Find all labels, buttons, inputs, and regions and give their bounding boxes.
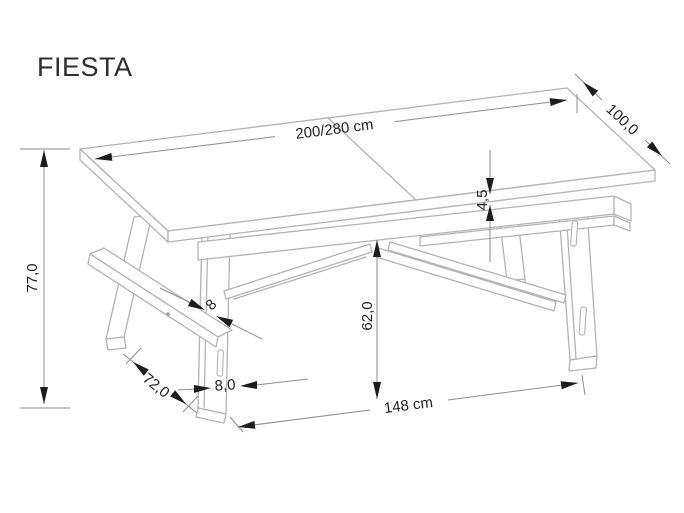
dim-height-label: 77,0 (24, 263, 41, 292)
mortise-slot (579, 307, 586, 335)
mortise-slot (217, 350, 223, 376)
dim-top-thickness-label: 4,5 (474, 190, 491, 211)
drawing-canvas: 77,0 200/280 cm 100,0 4,5 62,0 (0, 0, 684, 513)
dim-leg-width: 8,0 (178, 376, 308, 394)
dim-leg-width-label: 8,0 (214, 376, 236, 394)
dim-base-length: 148 cm (230, 375, 585, 432)
dim-clearance-label: 62,0 (359, 301, 376, 330)
dowel-pin (166, 312, 170, 316)
dim-clearance: 62,0 (359, 240, 381, 399)
dim-base-length-label: 148 cm (383, 394, 434, 417)
right-front-leg (559, 209, 597, 371)
table-drawing (80, 88, 655, 423)
mortise-slot (571, 221, 578, 246)
dim-height: 77,0 (20, 149, 70, 408)
dim-foot-spread: 72,0 (123, 348, 198, 413)
product-title: FIESTA (37, 52, 133, 82)
